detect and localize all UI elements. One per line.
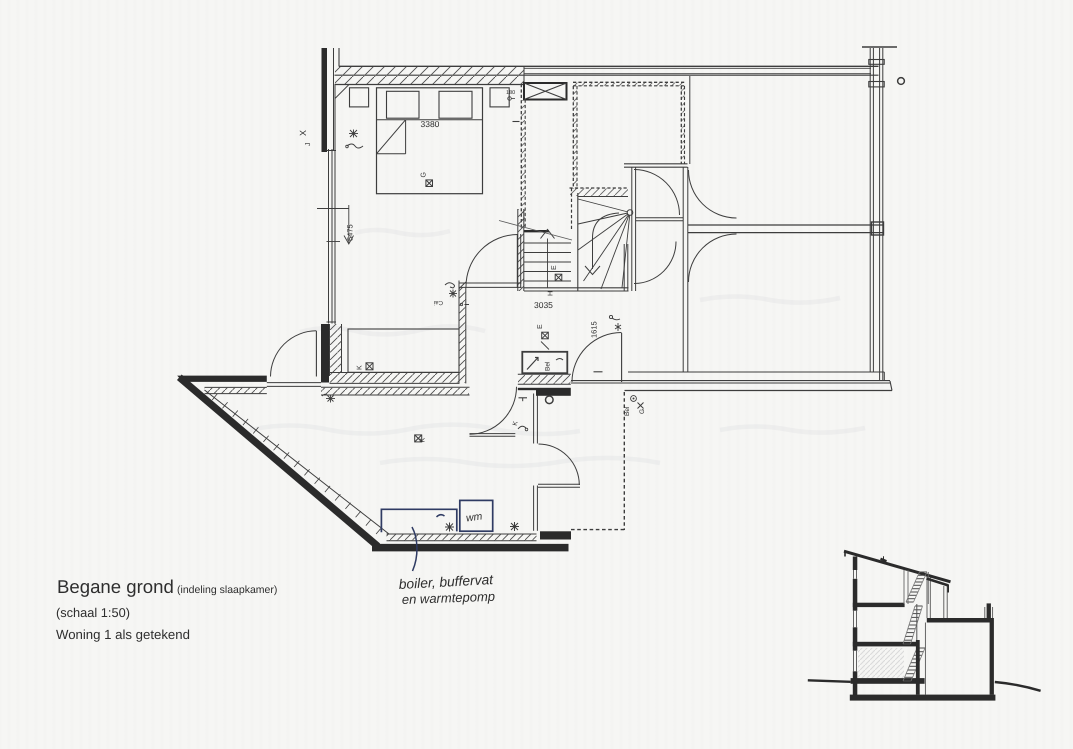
svg-text:Woning 1 als getekend: Woning 1 als getekend: [56, 627, 190, 642]
svg-text:G: G: [639, 409, 646, 414]
svg-text:Bel: Bel: [624, 406, 631, 416]
svg-text:wm: wm: [465, 510, 483, 524]
svg-text:3035: 3035: [534, 300, 553, 310]
svg-text:en warmtepomp: en warmtepomp: [402, 589, 496, 607]
svg-text:Bel: Bel: [545, 361, 552, 371]
svg-text:J: J: [305, 143, 312, 147]
svg-text:(indeling slaapkamer): (indeling slaapkamer): [177, 584, 277, 596]
svg-text:H: H: [548, 291, 555, 296]
svg-text:(schaal 1:50): (schaal 1:50): [56, 605, 130, 620]
svg-text:E: E: [551, 265, 558, 270]
svg-text:K: K: [357, 365, 364, 370]
svg-text:Cai: Cai: [434, 299, 443, 306]
svg-text:180: 180: [506, 90, 515, 96]
svg-text:5475: 5475: [346, 224, 355, 241]
svg-text:G: G: [421, 172, 428, 177]
svg-text:3380: 3380: [421, 119, 440, 129]
svg-text:K: K: [420, 438, 427, 443]
svg-text:K: K: [512, 420, 520, 427]
svg-text:X: X: [298, 130, 308, 136]
svg-text:1615: 1615: [590, 321, 599, 338]
svg-text:Begane grond: Begane grond: [57, 576, 174, 597]
svg-text:E: E: [537, 324, 544, 329]
